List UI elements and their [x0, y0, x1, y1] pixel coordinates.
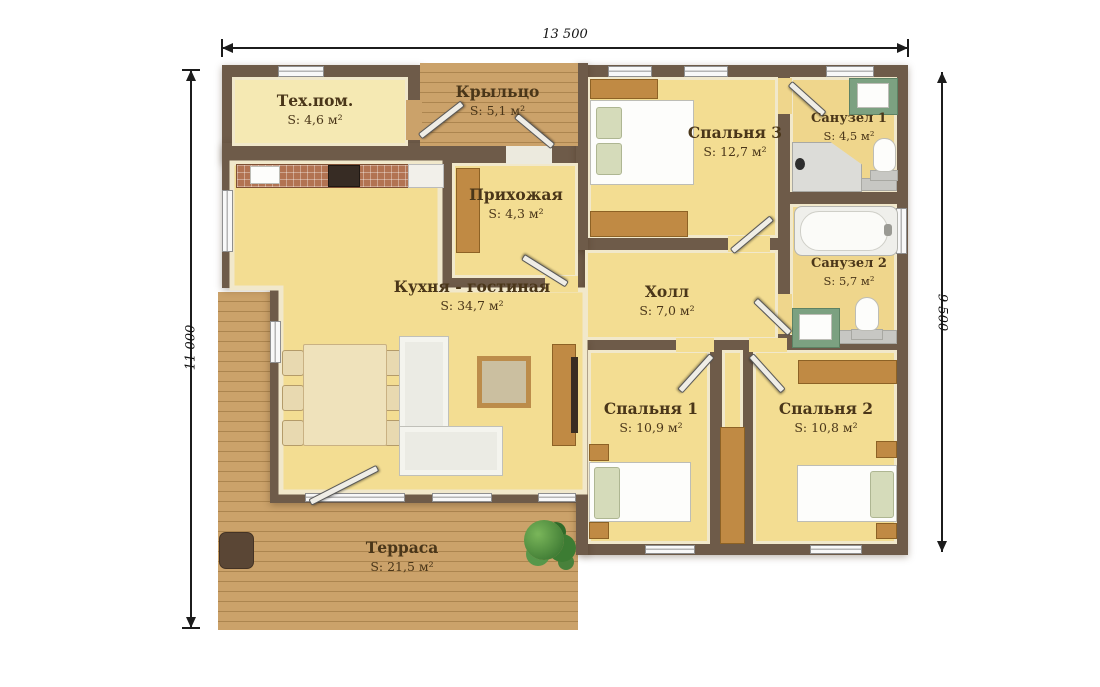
dresser [590, 211, 688, 237]
pillow [870, 471, 894, 518]
wardrobe [456, 168, 480, 253]
dimension-tick [221, 39, 223, 57]
arrow-up-icon [186, 70, 196, 81]
stove [328, 165, 360, 187]
corridor-floor [722, 350, 743, 427]
chair [282, 385, 304, 411]
porch-deck [420, 63, 578, 146]
dimension-label-right: 9 500 [935, 273, 950, 353]
dimension-tick [182, 627, 200, 629]
pillow [596, 107, 622, 139]
sink [799, 314, 832, 340]
pillow [594, 467, 620, 519]
doorway-entry [506, 146, 552, 164]
dining-table [303, 344, 387, 446]
window [538, 493, 576, 502]
nightstand [589, 444, 609, 461]
tv-icon [571, 357, 578, 433]
closet [720, 427, 745, 544]
window [278, 66, 324, 77]
doorway-bedroom2 [749, 338, 787, 352]
doorway-bedroom1 [676, 338, 714, 352]
window [826, 66, 874, 77]
pillow [596, 143, 622, 175]
sink [857, 83, 889, 108]
counter-white [408, 164, 444, 188]
arrow-left-icon [222, 43, 233, 53]
dimension-label-left: 11 000 [184, 308, 199, 388]
nightstand [876, 441, 897, 458]
window [645, 545, 695, 554]
kitchen-sink [250, 166, 280, 184]
toilet [855, 297, 879, 331]
tub-faucet-icon [884, 224, 892, 236]
sofa [399, 426, 503, 476]
window [222, 190, 233, 252]
arrow-up-icon [937, 72, 947, 83]
room-floor-tech [232, 77, 408, 146]
window [810, 545, 862, 554]
dimension-tick [182, 69, 200, 71]
window [270, 321, 281, 363]
dimension-label-top: 13 500 [510, 27, 620, 42]
window [684, 66, 728, 77]
nightstand [589, 522, 609, 539]
shower-faucet-icon [795, 158, 805, 170]
toilet [873, 138, 896, 172]
dimension-line-top [222, 47, 908, 49]
chair [282, 420, 304, 446]
bathtub-inner [800, 211, 888, 251]
window [608, 66, 652, 77]
coffee-table [477, 356, 531, 408]
window [432, 493, 492, 502]
nightstand [876, 523, 897, 539]
arrow-down-icon [937, 541, 947, 552]
floor-plan-canvas: 13 500 11 000 9 500 [0, 0, 1100, 687]
plant [524, 520, 564, 560]
stool [219, 532, 254, 569]
desk [798, 360, 897, 384]
shelf [590, 79, 658, 99]
room-floor-hall [585, 250, 778, 340]
chair [282, 350, 304, 376]
dimension-tick [907, 39, 909, 57]
